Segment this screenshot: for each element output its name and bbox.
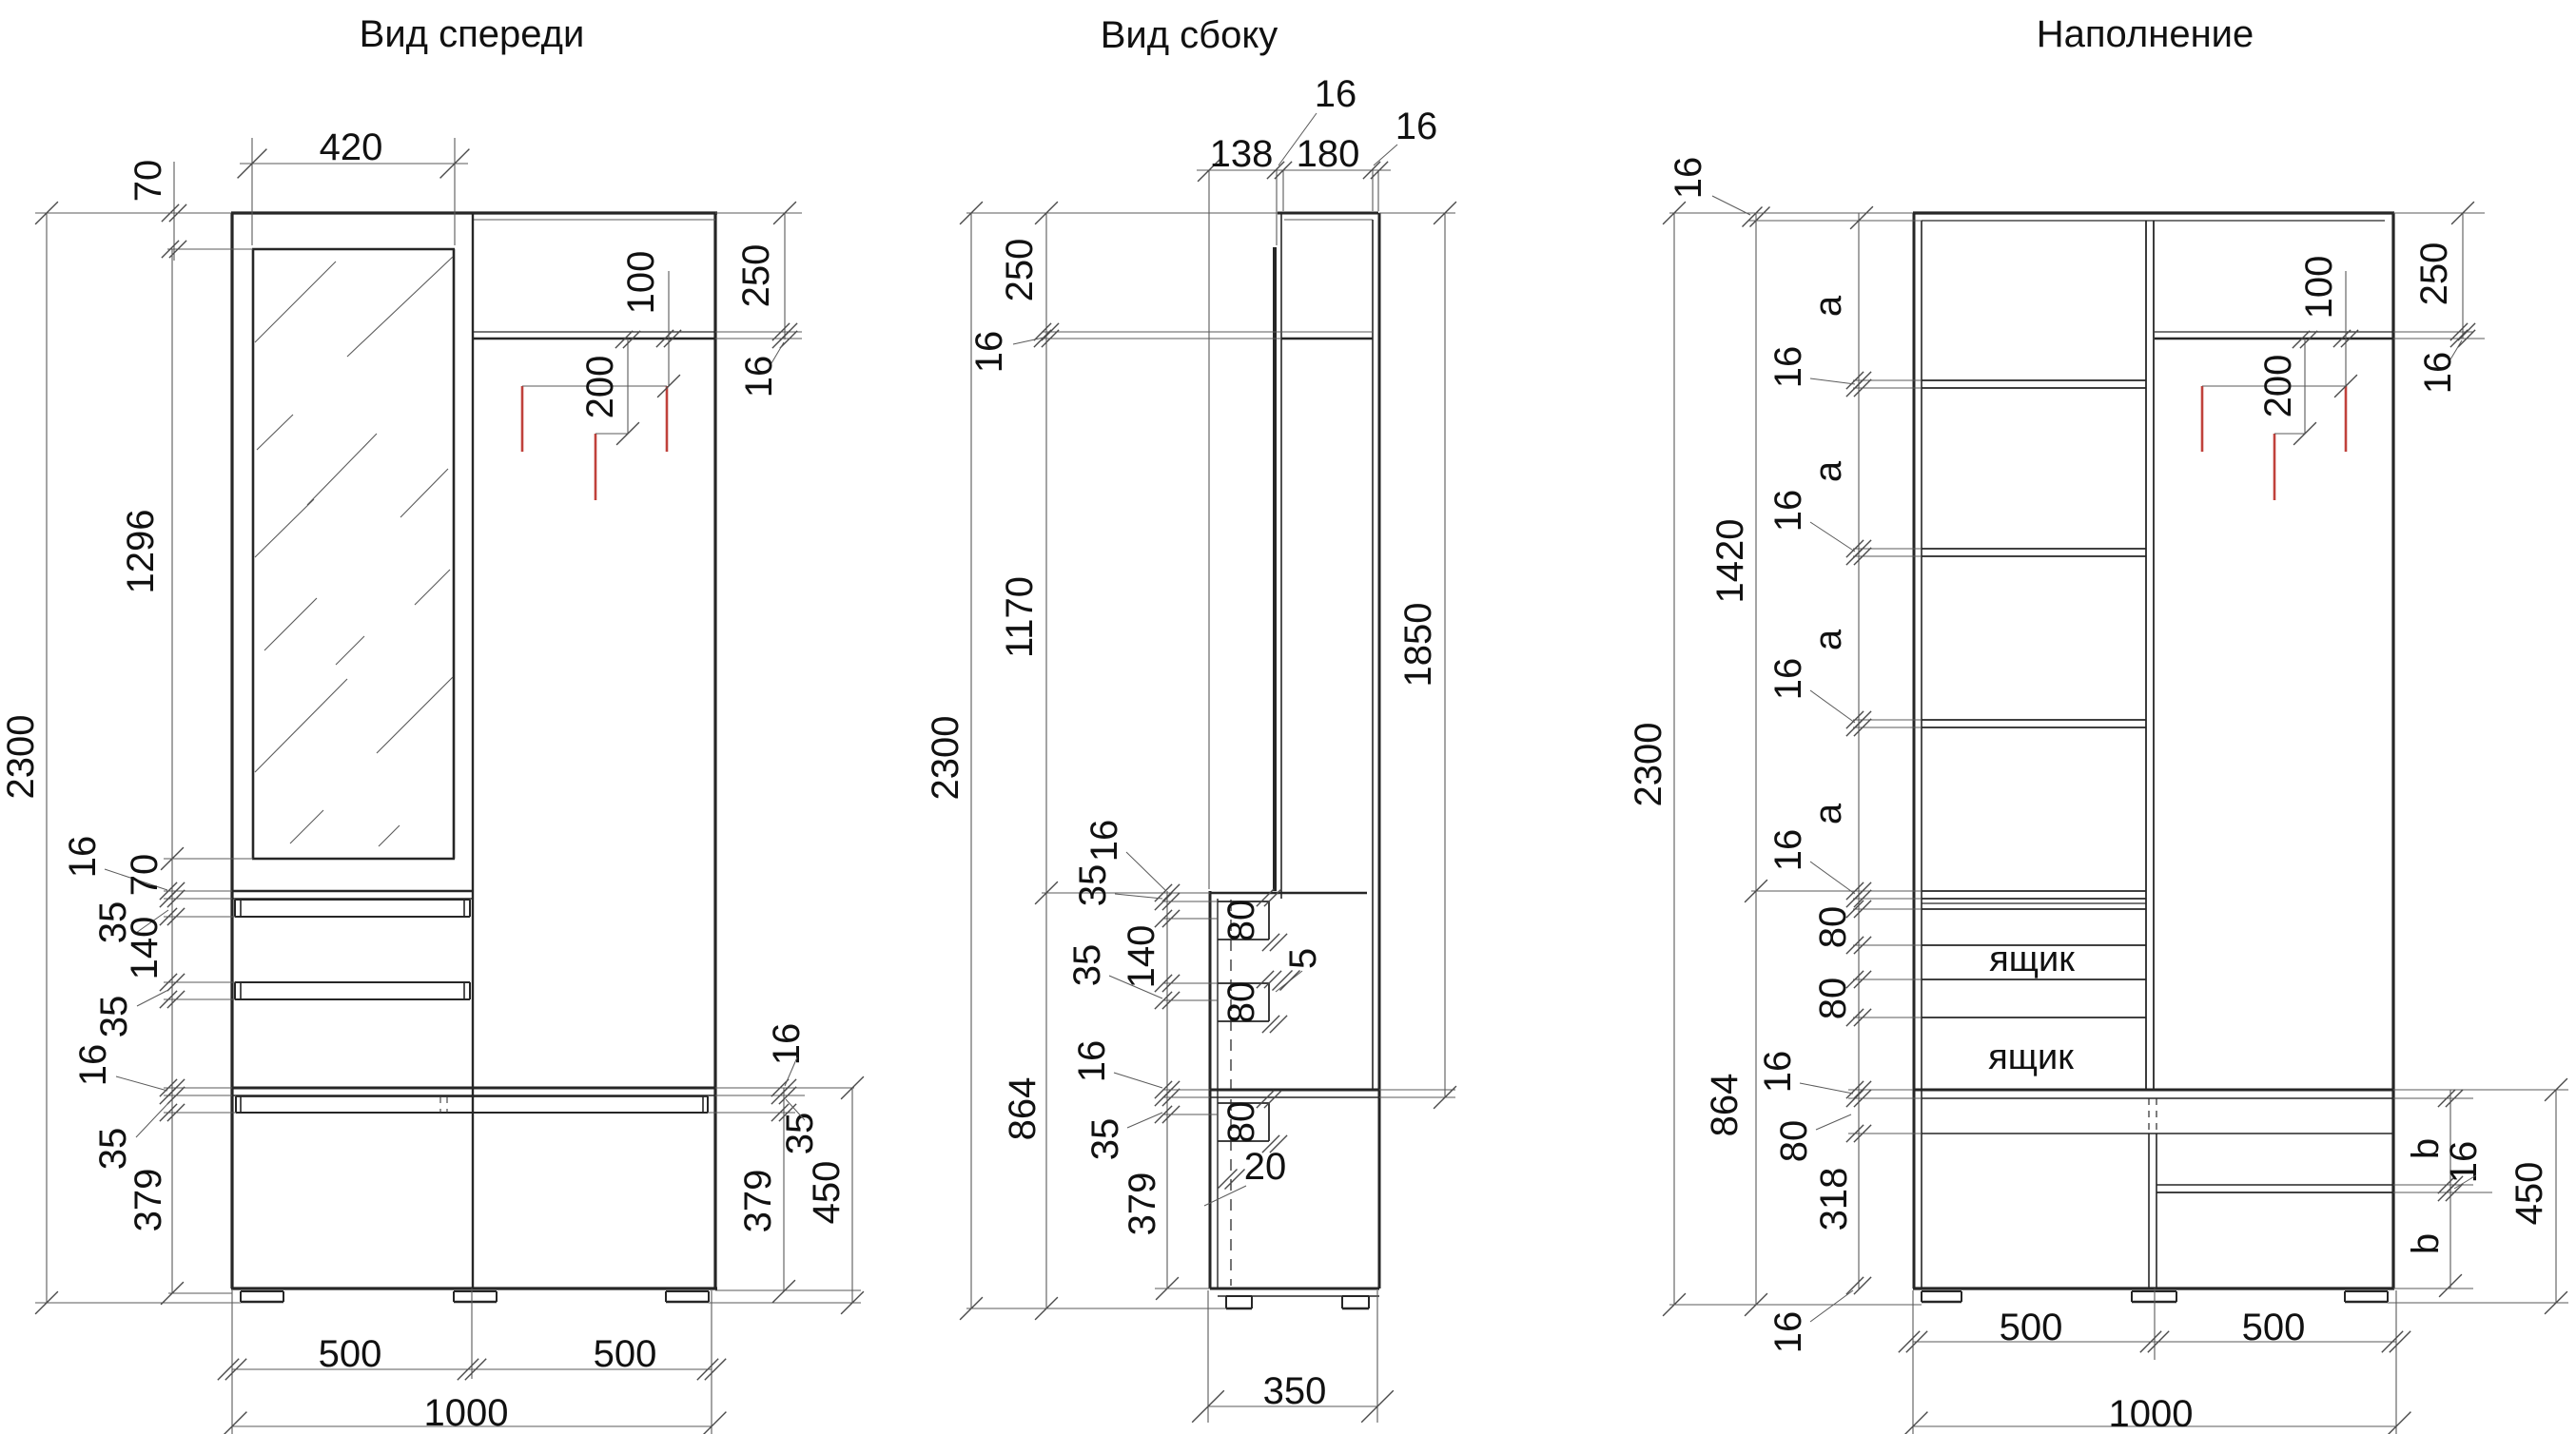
svg-text:180: 180 [1297, 133, 1360, 175]
svg-text:70: 70 [124, 854, 166, 897]
svg-text:16: 16 [738, 356, 780, 398]
svg-text:80: 80 [1773, 1120, 1815, 1163]
svg-text:35: 35 [779, 1113, 821, 1155]
svg-text:a: a [1807, 295, 1849, 317]
svg-text:140: 140 [1121, 925, 1162, 989]
svg-text:100: 100 [620, 251, 662, 315]
svg-text:35: 35 [1066, 944, 1108, 987]
svg-text:b: b [2405, 1233, 2447, 1254]
svg-text:1000: 1000 [424, 1392, 509, 1434]
svg-text:80: 80 [1220, 981, 1262, 1024]
svg-text:420: 420 [320, 126, 383, 168]
svg-text:250: 250 [735, 244, 777, 308]
svg-text:500: 500 [2000, 1307, 2063, 1348]
svg-text:16: 16 [766, 1023, 808, 1066]
svg-text:a: a [1807, 460, 1849, 482]
svg-text:16: 16 [1315, 73, 1357, 115]
svg-text:864: 864 [1002, 1077, 1044, 1141]
svg-text:250: 250 [2413, 242, 2455, 306]
svg-text:200: 200 [579, 356, 621, 419]
svg-text:35: 35 [92, 1128, 134, 1171]
svg-text:379: 379 [127, 1169, 169, 1232]
svg-text:a: a [1807, 803, 1849, 824]
svg-text:Вид спереди: Вид спереди [360, 13, 585, 55]
svg-text:b: b [2405, 1138, 2447, 1159]
svg-text:5: 5 [1282, 948, 1324, 969]
svg-text:16: 16 [1767, 829, 1809, 872]
svg-text:70: 70 [127, 160, 169, 203]
svg-text:35: 35 [1084, 1118, 1126, 1161]
svg-text:500: 500 [594, 1333, 657, 1375]
svg-text:16: 16 [968, 331, 1010, 374]
svg-text:80: 80 [1812, 978, 1854, 1020]
svg-text:450: 450 [806, 1161, 848, 1225]
svg-text:2300: 2300 [1628, 723, 1669, 807]
svg-text:318: 318 [1813, 1168, 1855, 1231]
svg-text:ящик: ящик [1989, 940, 2075, 979]
svg-text:16: 16 [1083, 820, 1125, 862]
svg-text:500: 500 [319, 1333, 382, 1375]
svg-text:80: 80 [1220, 1101, 1262, 1144]
svg-text:1170: 1170 [999, 576, 1041, 658]
svg-text:1420: 1420 [1709, 519, 1751, 604]
svg-text:500: 500 [2242, 1307, 2306, 1348]
svg-text:138: 138 [1210, 133, 1274, 175]
svg-text:35: 35 [93, 996, 135, 1038]
svg-text:140: 140 [124, 917, 166, 980]
svg-text:16: 16 [1395, 106, 1438, 147]
svg-text:16: 16 [1668, 157, 1709, 200]
svg-text:16: 16 [1767, 658, 1809, 701]
svg-text:16: 16 [72, 1044, 114, 1087]
svg-text:1850: 1850 [1397, 603, 1439, 688]
svg-text:16: 16 [1767, 346, 1809, 389]
svg-text:20: 20 [1244, 1146, 1287, 1188]
svg-text:Вид сбоку: Вид сбоку [1101, 14, 1278, 56]
svg-text:16: 16 [1071, 1040, 1113, 1083]
svg-text:80: 80 [1220, 900, 1262, 942]
svg-text:250: 250 [999, 239, 1041, 302]
svg-text:2300: 2300 [925, 716, 966, 801]
svg-text:379: 379 [737, 1170, 779, 1233]
svg-text:ящик: ящик [1988, 1037, 2074, 1077]
svg-text:16: 16 [1757, 1051, 1799, 1094]
svg-text:Наполнение: Наполнение [2037, 13, 2254, 55]
svg-text:16: 16 [2443, 1141, 2485, 1184]
svg-text:80: 80 [1812, 906, 1854, 949]
svg-text:379: 379 [1122, 1172, 1163, 1236]
svg-text:200: 200 [2257, 355, 2299, 418]
svg-text:1000: 1000 [2109, 1393, 2194, 1434]
svg-text:16: 16 [1767, 1311, 1809, 1354]
svg-text:16: 16 [62, 836, 104, 879]
svg-text:350: 350 [1263, 1370, 1327, 1412]
svg-text:a: a [1807, 629, 1849, 650]
svg-text:1296: 1296 [120, 510, 162, 594]
svg-text:100: 100 [2298, 256, 2340, 320]
svg-text:450: 450 [2508, 1162, 2550, 1226]
svg-text:864: 864 [1704, 1074, 1746, 1137]
svg-text:16: 16 [2417, 352, 2459, 395]
svg-text:35: 35 [1072, 864, 1114, 907]
svg-text:2300: 2300 [0, 715, 42, 800]
svg-text:16: 16 [1767, 490, 1809, 533]
